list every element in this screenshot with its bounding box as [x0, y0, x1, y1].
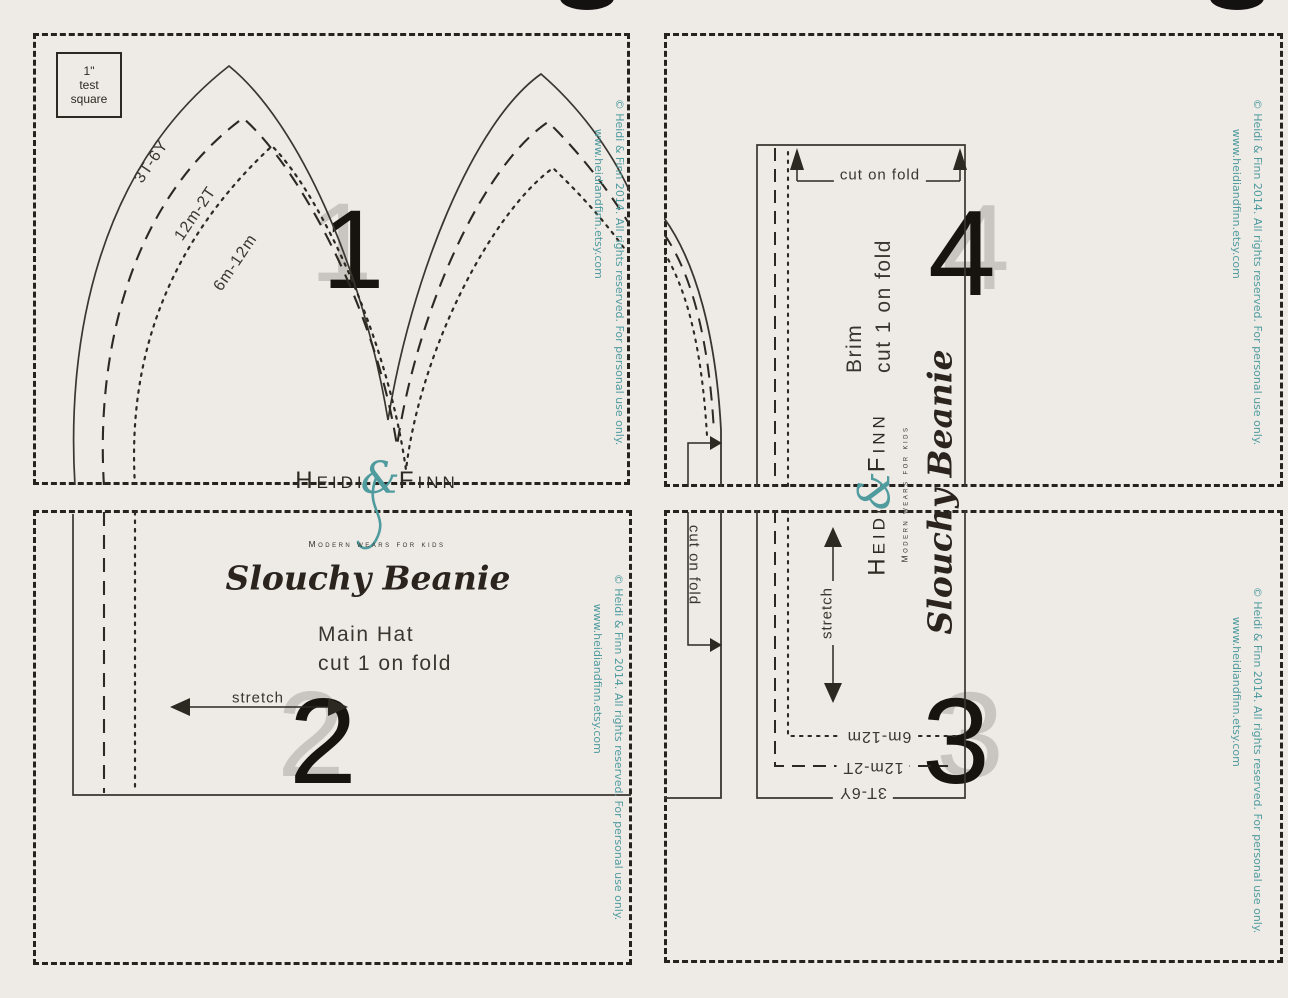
brim-cut-instruction: cut 1 on fold	[869, 239, 898, 373]
main-hat-cut-instruction: cut 1 on fold	[318, 649, 452, 678]
brand-ampersand: &	[850, 467, 901, 510]
copyright-url: www.heidiandfinn.etsy.com	[587, 604, 608, 921]
page-number-4: 4	[928, 192, 996, 314]
stretch-label-vertical: stretch	[819, 581, 836, 645]
brand-name-last: Finn	[399, 467, 459, 495]
test-square-label: test	[79, 78, 98, 92]
main-hat-label: Main Hat cut 1 on fold	[318, 620, 452, 678]
brand-name: Heidi&Finn	[845, 409, 896, 579]
brand-logo-rotated: Heidi&Finn Modern wears for kids	[845, 409, 910, 579]
copyright-line: © Heidi & Finn 2014. All rights reserved…	[609, 99, 630, 446]
copyright-line: © Heidi & Finn 2014. All rights reserved…	[1247, 587, 1268, 934]
brand-name: Heidi&Finn	[292, 448, 462, 499]
size-label-6m12m-brim: 6m-12m	[841, 727, 918, 745]
pattern-sheet: 1" test square 3T-6Y 12m-2T 6m-12m 1 2 4…	[0, 0, 1295, 998]
main-hat-piece-name: Main Hat	[318, 620, 452, 649]
copyright-line: © Heidi & Finn 2014. All rights reserved…	[608, 574, 629, 921]
page-number-2: 2	[289, 680, 357, 802]
size-label-12m2t-brim: 12m-2T	[836, 758, 909, 776]
copyright-page2: © Heidi & Finn 2014. All rights reserved…	[587, 574, 629, 921]
pattern-title: Slouchy Beanie	[226, 559, 511, 598]
page-number-3: 3	[922, 680, 990, 802]
brand-name-last: Finn	[864, 412, 892, 472]
cropped-title-fragment	[1210, 0, 1264, 10]
pattern-title-rotated: Slouchy Beanie	[921, 350, 960, 635]
copyright-page1: © Heidi & Finn 2014. All rights reserved…	[588, 99, 630, 446]
scan-edge	[1288, 0, 1295, 998]
brim-label: Brim cut 1 on fold	[840, 239, 898, 373]
cut-on-fold-label: cut on fold	[834, 167, 926, 184]
cut-on-fold-label-side: cut on fold	[686, 525, 703, 605]
size-label-3t6y-brim: 3T-6Y	[833, 783, 893, 801]
brand-tagline: Modern wears for kids	[292, 539, 462, 549]
brand-tagline: Modern wears for kids	[900, 409, 910, 579]
copyright-page3: © Heidi & Finn 2014. All rights reserved…	[1226, 587, 1268, 934]
stretch-label: stretch	[232, 690, 284, 707]
brim-piece-name: Brim	[840, 239, 869, 373]
copyright-line: © Heidi & Finn 2014. All rights reserved…	[1247, 99, 1268, 446]
test-square-size: 1"	[84, 64, 95, 78]
brand-name-first: Heidi	[295, 467, 365, 495]
test-square: 1" test square	[56, 52, 122, 118]
brand-ampersand: &	[361, 453, 404, 504]
copyright-page4: © Heidi & Finn 2014. All rights reserved…	[1226, 99, 1268, 446]
page-number-1: 1	[322, 194, 384, 306]
brand-logo: Heidi&Finn Modern wears for kids	[292, 448, 462, 549]
copyright-url: www.heidiandfinn.etsy.com	[1226, 617, 1247, 934]
cropped-title-fragment	[560, 0, 614, 10]
test-square-label: square	[71, 92, 108, 106]
copyright-url: www.heidiandfinn.etsy.com	[588, 129, 609, 446]
copyright-url: www.heidiandfinn.etsy.com	[1226, 129, 1247, 446]
brand-name-first: Heidi	[864, 505, 892, 575]
